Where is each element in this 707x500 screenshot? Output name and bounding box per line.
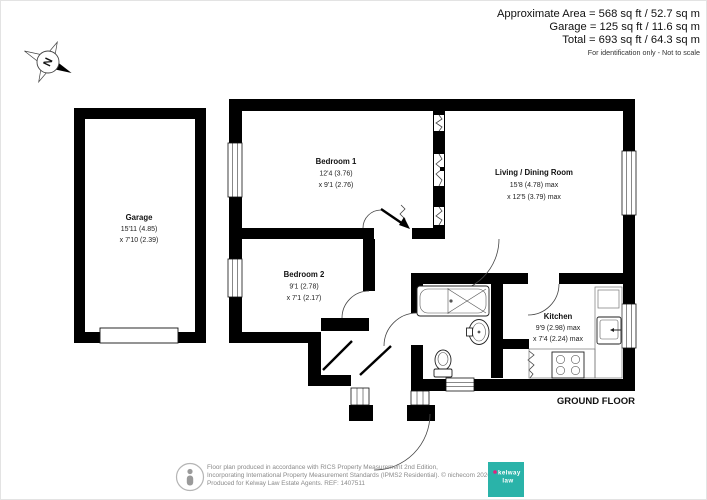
living-dining-label: Living / Dining Room 15'8 (4.78) max x 1… xyxy=(495,168,573,201)
svg-text:12'4 (3.76): 12'4 (3.76) xyxy=(319,171,352,178)
svg-text:15'11 (4.85): 15'11 (4.85) xyxy=(121,226,158,233)
bathtub xyxy=(417,286,489,316)
garage-door xyxy=(100,328,178,343)
svg-text:Kitchen: Kitchen xyxy=(544,312,573,321)
wash-basin xyxy=(467,320,490,345)
bedroom2-label: Bedroom 2 9'1 (2.78) x 7'1 (2.17) xyxy=(284,270,325,302)
bathroom-fixtures xyxy=(417,286,489,377)
front-door-arc xyxy=(374,414,430,470)
area-summary: Approximate Area = 568 sq ft / 52.7 sq m… xyxy=(497,8,700,57)
svg-text:9'1 (2.78): 9'1 (2.78) xyxy=(289,284,318,291)
bedroom2-door-arc xyxy=(342,291,369,318)
logo-word-1: kelway xyxy=(498,470,521,477)
front-door-leaf xyxy=(360,346,391,375)
bath-tap-icon xyxy=(449,299,452,302)
toilet xyxy=(434,350,452,377)
garage-structure: Garage 15'11 (4.85) x 7'10 (2.39) xyxy=(74,108,206,343)
wc-window xyxy=(446,378,474,391)
living-room-door-arc xyxy=(445,239,499,293)
svg-text:Garage: Garage xyxy=(126,213,154,222)
entrance-arrow-icon xyxy=(399,217,410,229)
living-room-window xyxy=(622,151,636,215)
svg-text:x 12'5 (3.79) max: x 12'5 (3.79) max xyxy=(507,194,561,201)
logo-dot-icon xyxy=(493,470,497,474)
floor-plan-page: Approximate Area = 568 sq ft / 52.7 sq m… xyxy=(0,0,707,500)
bedroom1-label: Bedroom 1 12'4 (3.76) x 9'1 (2.76) xyxy=(316,157,357,189)
kitchen-fixtures xyxy=(529,287,622,378)
wall-break-marks xyxy=(400,115,534,378)
kitchen-door-arc xyxy=(528,284,559,315)
hob xyxy=(552,352,584,378)
total-area-text: Total = 693 sq ft / 64.3 sq m xyxy=(562,34,700,46)
floor-label: GROUND FLOOR xyxy=(557,396,635,407)
svg-text:x 7'1 (2.17): x 7'1 (2.17) xyxy=(287,295,322,302)
cupboard-door-leaf xyxy=(323,341,352,370)
approximate-area-text: Approximate Area = 568 sq ft / 52.7 sq m xyxy=(497,8,700,20)
kitchen-window xyxy=(622,304,636,348)
kelway-law-logo: kelway law xyxy=(488,462,524,497)
person-icon xyxy=(177,464,204,491)
porch-left-window xyxy=(351,388,369,405)
footer: Floor plan produced in accordance with R… xyxy=(177,462,525,497)
svg-text:9'9 (2.98) max: 9'9 (2.98) max xyxy=(536,325,581,332)
bedroom1-window xyxy=(228,143,242,197)
svg-text:x 9'1 (2.76): x 9'1 (2.76) xyxy=(319,182,354,189)
basin-tap-icon xyxy=(467,328,473,336)
toilet-cistern xyxy=(434,369,452,377)
svg-text:Living / Dining Room: Living / Dining Room xyxy=(495,168,573,177)
garage-label: Garage 15'11 (4.85) x 7'10 (2.39) xyxy=(120,213,159,244)
footer-line-1: Floor plan produced in accordance with R… xyxy=(207,464,438,471)
porch-right-window xyxy=(411,391,429,405)
svg-text:Bedroom 2: Bedroom 2 xyxy=(284,270,325,279)
svg-text:x 7'10 (2.39): x 7'10 (2.39) xyxy=(120,237,159,244)
kitchen-label: Kitchen 9'9 (2.98) max x 7'4 (2.24) max xyxy=(533,312,583,343)
footer-line-3: Produced for Kelway Law Estate Agents. R… xyxy=(207,480,365,487)
svg-text:Bedroom 1: Bedroom 1 xyxy=(316,157,357,166)
disclaimer-text: For identification only - Not to scale xyxy=(588,48,700,57)
svg-text:15'8 (4.78) max: 15'8 (4.78) max xyxy=(510,182,559,189)
svg-text:x 7'4 (2.24) max: x 7'4 (2.24) max xyxy=(533,336,583,343)
logo-word-2: law xyxy=(502,478,513,485)
kitchen-appliance xyxy=(598,290,619,308)
floor-plan-canvas: Approximate Area = 568 sq ft / 52.7 sq m… xyxy=(1,1,707,500)
bedroom1-door-arc xyxy=(363,210,381,228)
compass-rose-icon: N xyxy=(24,42,71,82)
footer-line-2: Incorporating International Property Mea… xyxy=(207,471,493,479)
garage-area-text: Garage = 125 sq ft / 11.6 sq m xyxy=(549,21,700,33)
kitchen-sink xyxy=(597,317,621,344)
bedroom1-door-leaf xyxy=(381,209,403,224)
bathroom-door-arc xyxy=(384,313,417,346)
bedroom2-window xyxy=(228,259,242,297)
